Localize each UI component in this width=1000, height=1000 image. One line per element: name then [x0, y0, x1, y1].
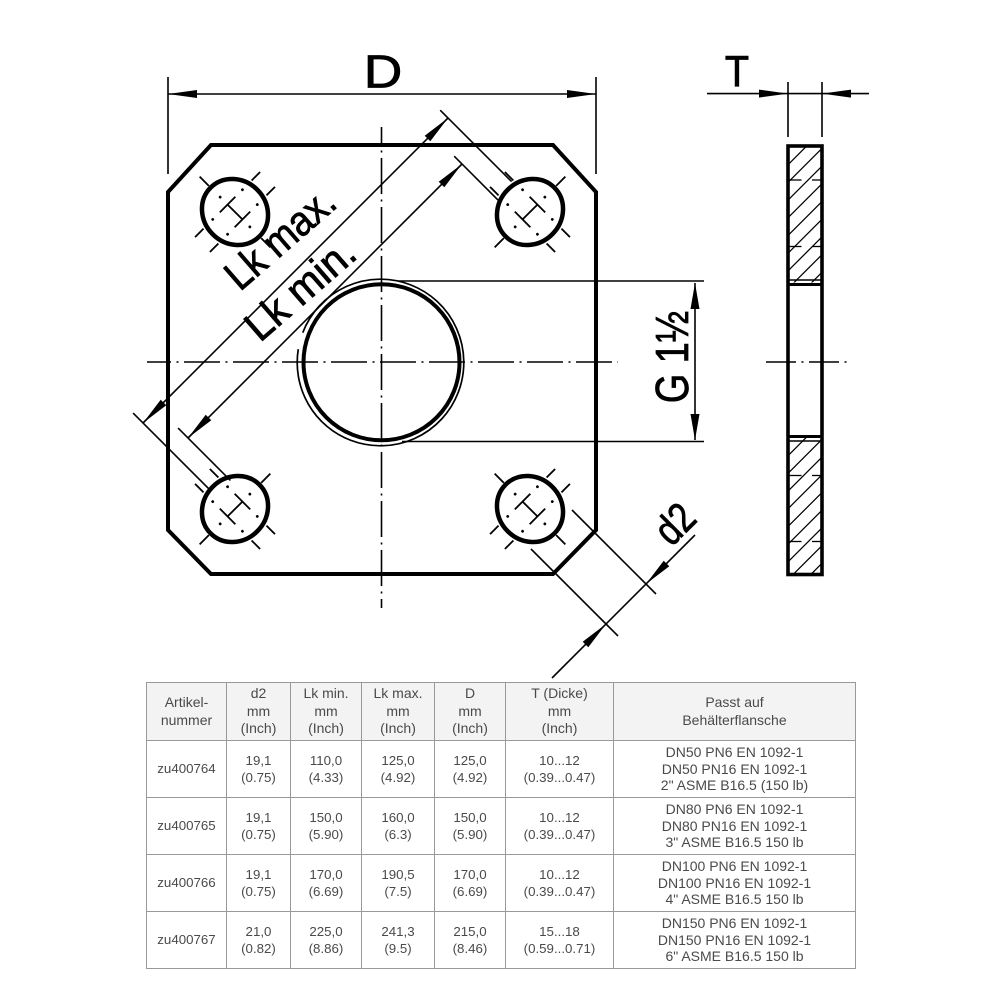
svg-text:D: D — [364, 46, 403, 98]
svg-text:T: T — [725, 46, 749, 95]
svg-text:G 1½: G 1½ — [646, 311, 697, 403]
svg-text:d2: d2 — [645, 494, 705, 554]
